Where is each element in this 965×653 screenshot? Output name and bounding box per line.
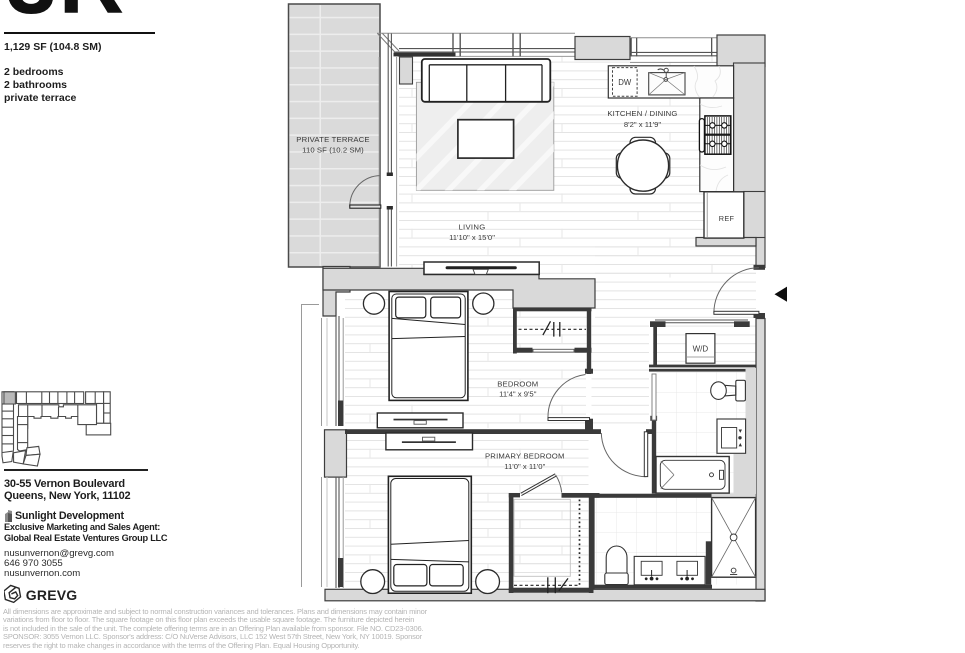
svg-text:LIVING: LIVING (458, 223, 485, 232)
svg-text:KITCHEN / DINING: KITCHEN / DINING (607, 109, 677, 118)
svg-text:PRIVATE TERRACE: PRIVATE TERRACE (296, 135, 369, 144)
svg-text:PRIMARY BEDROOM: PRIMARY BEDROOM (485, 452, 565, 461)
svg-text:11'10" x 15'0": 11'10" x 15'0" (449, 233, 495, 242)
svg-text:110 SF (10.2 SM): 110 SF (10.2 SM) (302, 146, 364, 155)
svg-text:REF: REF (719, 214, 735, 223)
svg-text:8'2" x 11'9": 8'2" x 11'9" (624, 120, 662, 129)
svg-text:DW: DW (618, 78, 632, 87)
svg-text:11'4" x 9'5": 11'4" x 9'5" (499, 390, 537, 399)
svg-text:11'0" x 11'0": 11'0" x 11'0" (504, 462, 545, 471)
svg-text:W/D: W/D (693, 345, 709, 354)
svg-text:BEDROOM: BEDROOM (497, 380, 538, 389)
